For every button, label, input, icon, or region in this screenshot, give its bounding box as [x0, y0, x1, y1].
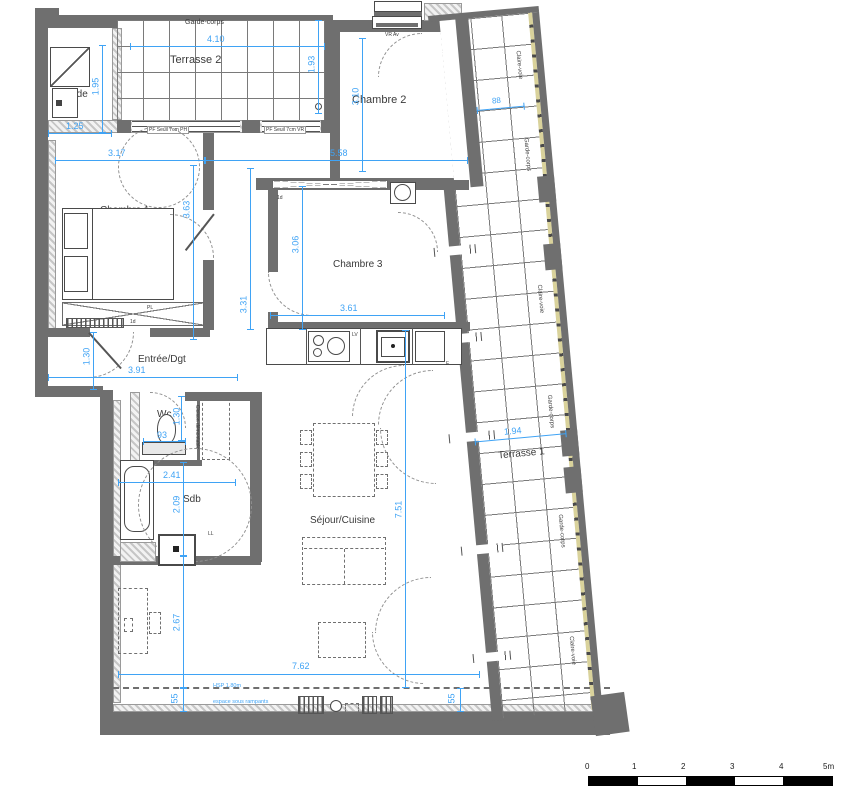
- dim-c1-width: 3.17: [108, 149, 126, 158]
- kitchen-divider-1: [306, 328, 307, 365]
- dining-chair-1: [300, 430, 312, 445]
- facade-pier-2: [242, 120, 260, 133]
- scale-bar: 0 1 2 3 4 5m: [585, 763, 835, 791]
- room-label-chambre3: Chambre 3: [333, 260, 382, 270]
- dim-sde-width: 1.25: [66, 122, 84, 131]
- dim-ramp-right: 55: [448, 693, 457, 703]
- dim-wc-width-line: [143, 441, 186, 442]
- boiler: [394, 184, 411, 201]
- dim-t2-height-line: [318, 20, 319, 114]
- dim-t2-width: 4.10: [207, 35, 225, 44]
- dim-sdb-width-line: [118, 482, 236, 483]
- dim-sdb-height-line: [183, 462, 184, 556]
- sejour-terrace-door-arc-4: [372, 632, 424, 684]
- hsp-note: HSP 1.80m: [213, 684, 241, 690]
- wall-chambre1-bottom-b: [150, 328, 210, 337]
- dim-c3-height-line: [302, 186, 303, 330]
- scale-label-5m: 5m: [823, 763, 834, 771]
- sdb-washbasin-dot: [173, 546, 179, 552]
- desk-item: [124, 618, 133, 632]
- coffee-table: [318, 622, 366, 658]
- chambre1-access-circle: [118, 126, 200, 208]
- wall-step-1: [443, 180, 469, 190]
- scale-bar-segments: [588, 776, 833, 786]
- dim-wc-height: 1.30: [172, 408, 181, 426]
- fridge-label: F: [446, 362, 449, 367]
- shower: [50, 47, 90, 87]
- dim-sej-left: 2.67: [172, 614, 181, 632]
- scale-seg-2: [638, 777, 687, 785]
- bed-pillow-2: [64, 256, 88, 292]
- dim-sde-height-line: [102, 45, 103, 133]
- bottom-fixture-box: [345, 703, 359, 713]
- scale-label-3: 3: [730, 763, 734, 771]
- terrace1-rail-pier-1: [537, 175, 556, 202]
- chambre3-terrace-door-arc: [398, 212, 438, 252]
- kitchen-divider-3: [412, 328, 413, 365]
- scale-seg-3: [686, 777, 735, 785]
- dim-sej-height: 7.51: [394, 501, 403, 519]
- dim-sdb-height: 2.09: [172, 496, 181, 514]
- chambre2-window-arc: [378, 33, 422, 77]
- bed-pillow-1: [64, 213, 88, 249]
- dim-c2-height-line: [362, 38, 363, 172]
- scale-label-4: 4: [779, 763, 783, 771]
- room-label-terrasse2: Terrasse 2: [170, 55, 221, 66]
- dining-chair-3: [300, 474, 312, 489]
- wall-chambre1-right-a: [203, 133, 214, 210]
- wall-chambre3-left-a: [268, 190, 278, 272]
- dim-entree-width-line: [48, 377, 238, 378]
- bed-fold-line: [92, 208, 93, 300]
- scale-label-2: 2: [681, 763, 685, 771]
- dim-t2-height: 1.93: [307, 56, 316, 74]
- stove-burner-3: [327, 337, 345, 355]
- scale-label-1: 1: [632, 763, 636, 771]
- window-label-3: VR Av: [385, 33, 399, 38]
- radiator-1: [298, 696, 324, 714]
- dim-c2-height: 3.10: [351, 88, 360, 106]
- kitchen-divider-2: [360, 328, 361, 365]
- wall-left-lining: [48, 140, 56, 330]
- td-label-2: 1d: [277, 196, 283, 201]
- dim-c2-width: 5.58: [330, 149, 348, 158]
- wall-chambre1-right-b: [203, 260, 214, 330]
- placard-shelf: [66, 318, 124, 328]
- dim-entree-height: 1.30: [82, 348, 91, 366]
- dim-c3-height: 3.06: [291, 236, 300, 254]
- dim-c1-height-line: [193, 165, 194, 340]
- dim-wc-width: 93: [157, 431, 167, 440]
- dim-t1-width: 1.94: [504, 426, 522, 437]
- dim-sej-height-line: [405, 330, 406, 688]
- fridge: [415, 331, 445, 362]
- dim-sde-height: 1.95: [91, 78, 100, 96]
- window-label-2: PF Seuil 7cm VR: [264, 126, 306, 134]
- dim-t1-top: 88: [492, 97, 502, 106]
- wall-left-upper: [35, 15, 48, 397]
- room-label-entree: Entrée/Dgt: [138, 355, 186, 365]
- dining-chair-2: [300, 452, 312, 467]
- dim-c1-height: 3.63: [182, 201, 191, 219]
- kitchen-faucet-dot: [391, 344, 395, 348]
- dim-c1-width-line: [55, 160, 205, 161]
- dim-c2-width-line: [205, 160, 468, 161]
- dining-chair-6: [376, 474, 388, 489]
- dim-sej-width-line: [118, 674, 480, 675]
- dim-entree-width: 3.91: [128, 366, 146, 375]
- terrace1-rail-pier-2: [543, 243, 562, 270]
- facade-pier-1: [117, 120, 131, 133]
- dim-hall-height: 3.31: [239, 296, 248, 314]
- radiator-2: [362, 696, 377, 714]
- sejour-terrace-door-arc-2: [380, 428, 436, 484]
- dim-ramp-left: 55: [171, 693, 180, 703]
- dim-sde-width-line: [48, 133, 112, 134]
- dim-sdb-width: 2.41: [163, 471, 181, 480]
- floor-plan: PF Seuil 7cm PH PF Seuil 7cm VR Garde-co…: [0, 0, 845, 800]
- dim-t2-width-line: [130, 46, 325, 47]
- sde-washbasin-dot: [56, 100, 62, 106]
- dim-hall-height-line: [250, 168, 251, 330]
- bottom-fixture-circle: [330, 700, 342, 712]
- dim-sej-width: 7.62: [292, 662, 310, 671]
- dim-sej-left-line: [183, 556, 184, 688]
- scale-seg-1: [589, 777, 638, 785]
- terrace1-bottom-corner: [590, 692, 629, 736]
- placard-band-chambre3: [272, 180, 388, 189]
- rampants-note: espace sous rampants: [213, 700, 268, 706]
- td-label-1: 1d: [130, 320, 136, 325]
- scale-label-0: 0: [585, 763, 589, 771]
- rampant-dashed-line: [113, 687, 610, 689]
- dim-c3-width-line: [270, 315, 445, 316]
- stove-burner-1: [313, 335, 324, 346]
- dim-ramp-right-line: [460, 688, 461, 712]
- sdb-floor-tray: [120, 542, 156, 562]
- railing-label-top: Garde-corps: [185, 19, 224, 26]
- sofa-split-line: [344, 549, 345, 584]
- wall-left-lower: [100, 390, 113, 715]
- chambre2-window-shaft: [374, 1, 422, 12]
- room-label-sejour: Séjour/Cuisine: [310, 516, 375, 526]
- chambre3-door-arc: [268, 272, 312, 316]
- placard-label: PL: [147, 306, 153, 311]
- stove-burner-2: [313, 348, 322, 357]
- dim-ramp-left-line: [183, 688, 184, 712]
- desk: [118, 588, 148, 654]
- scale-seg-4: [735, 777, 784, 785]
- wall-chambre1-bottom-a: [48, 328, 90, 337]
- wall-wc-left: [130, 392, 140, 462]
- dim-c3-width: 3.61: [340, 304, 358, 313]
- chambre2-window-sill: [376, 23, 418, 27]
- radiator-3: [380, 696, 393, 714]
- lv-label: LV: [352, 333, 358, 338]
- scale-seg-5: [783, 777, 832, 785]
- wall-sejour-left: [250, 392, 262, 562]
- desk-chair: [149, 612, 161, 634]
- terrace1-rail-pier-4: [563, 466, 582, 493]
- dim-entree-height-line: [93, 332, 94, 390]
- ll-label: LL: [208, 532, 214, 537]
- sejour-terrace-door-arc-3: [375, 577, 431, 633]
- dining-table: [313, 423, 375, 497]
